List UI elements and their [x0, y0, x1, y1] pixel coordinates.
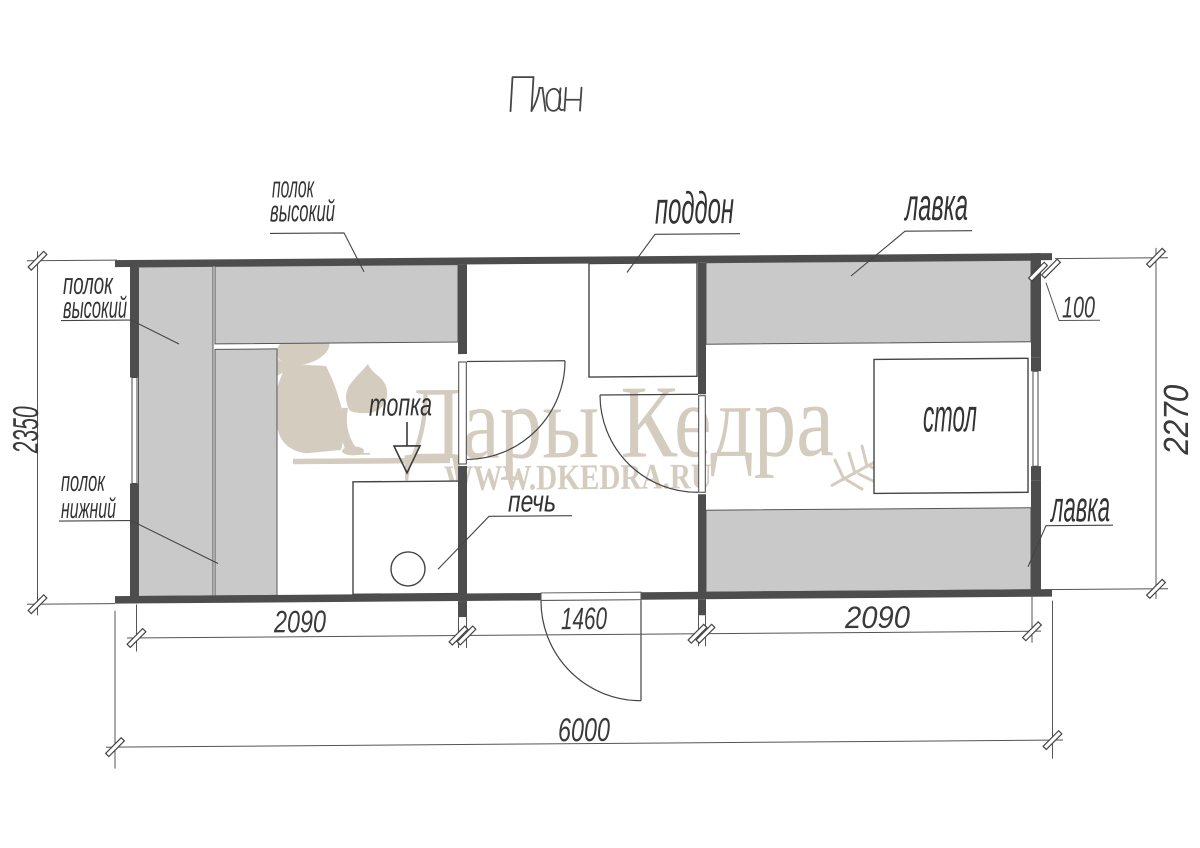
svg-text:2090: 2090: [844, 600, 910, 635]
svg-text:нижний: нижний: [61, 493, 116, 524]
svg-text:печь: печь: [508, 485, 556, 518]
svg-text:стол: стол: [923, 389, 977, 441]
svg-text:100: 100: [1062, 291, 1095, 324]
svg-text:лавка: лавка: [903, 179, 968, 230]
svg-text:WWW.DKEDRA.RU: WWW.DKEDRA.RU: [444, 456, 712, 498]
svg-text:2350: 2350: [5, 406, 46, 454]
svg-text:поддон: поддон: [655, 182, 734, 234]
svg-text:2270: 2270: [1157, 384, 1196, 456]
svg-text:топка: топка: [369, 386, 432, 422]
svg-text:2090: 2090: [273, 604, 326, 639]
svg-text:лавка: лавка: [1049, 483, 1110, 531]
svg-text:6000: 6000: [558, 711, 610, 748]
svg-text:1460: 1460: [561, 601, 607, 636]
svg-text:высокий: высокий: [270, 195, 335, 228]
